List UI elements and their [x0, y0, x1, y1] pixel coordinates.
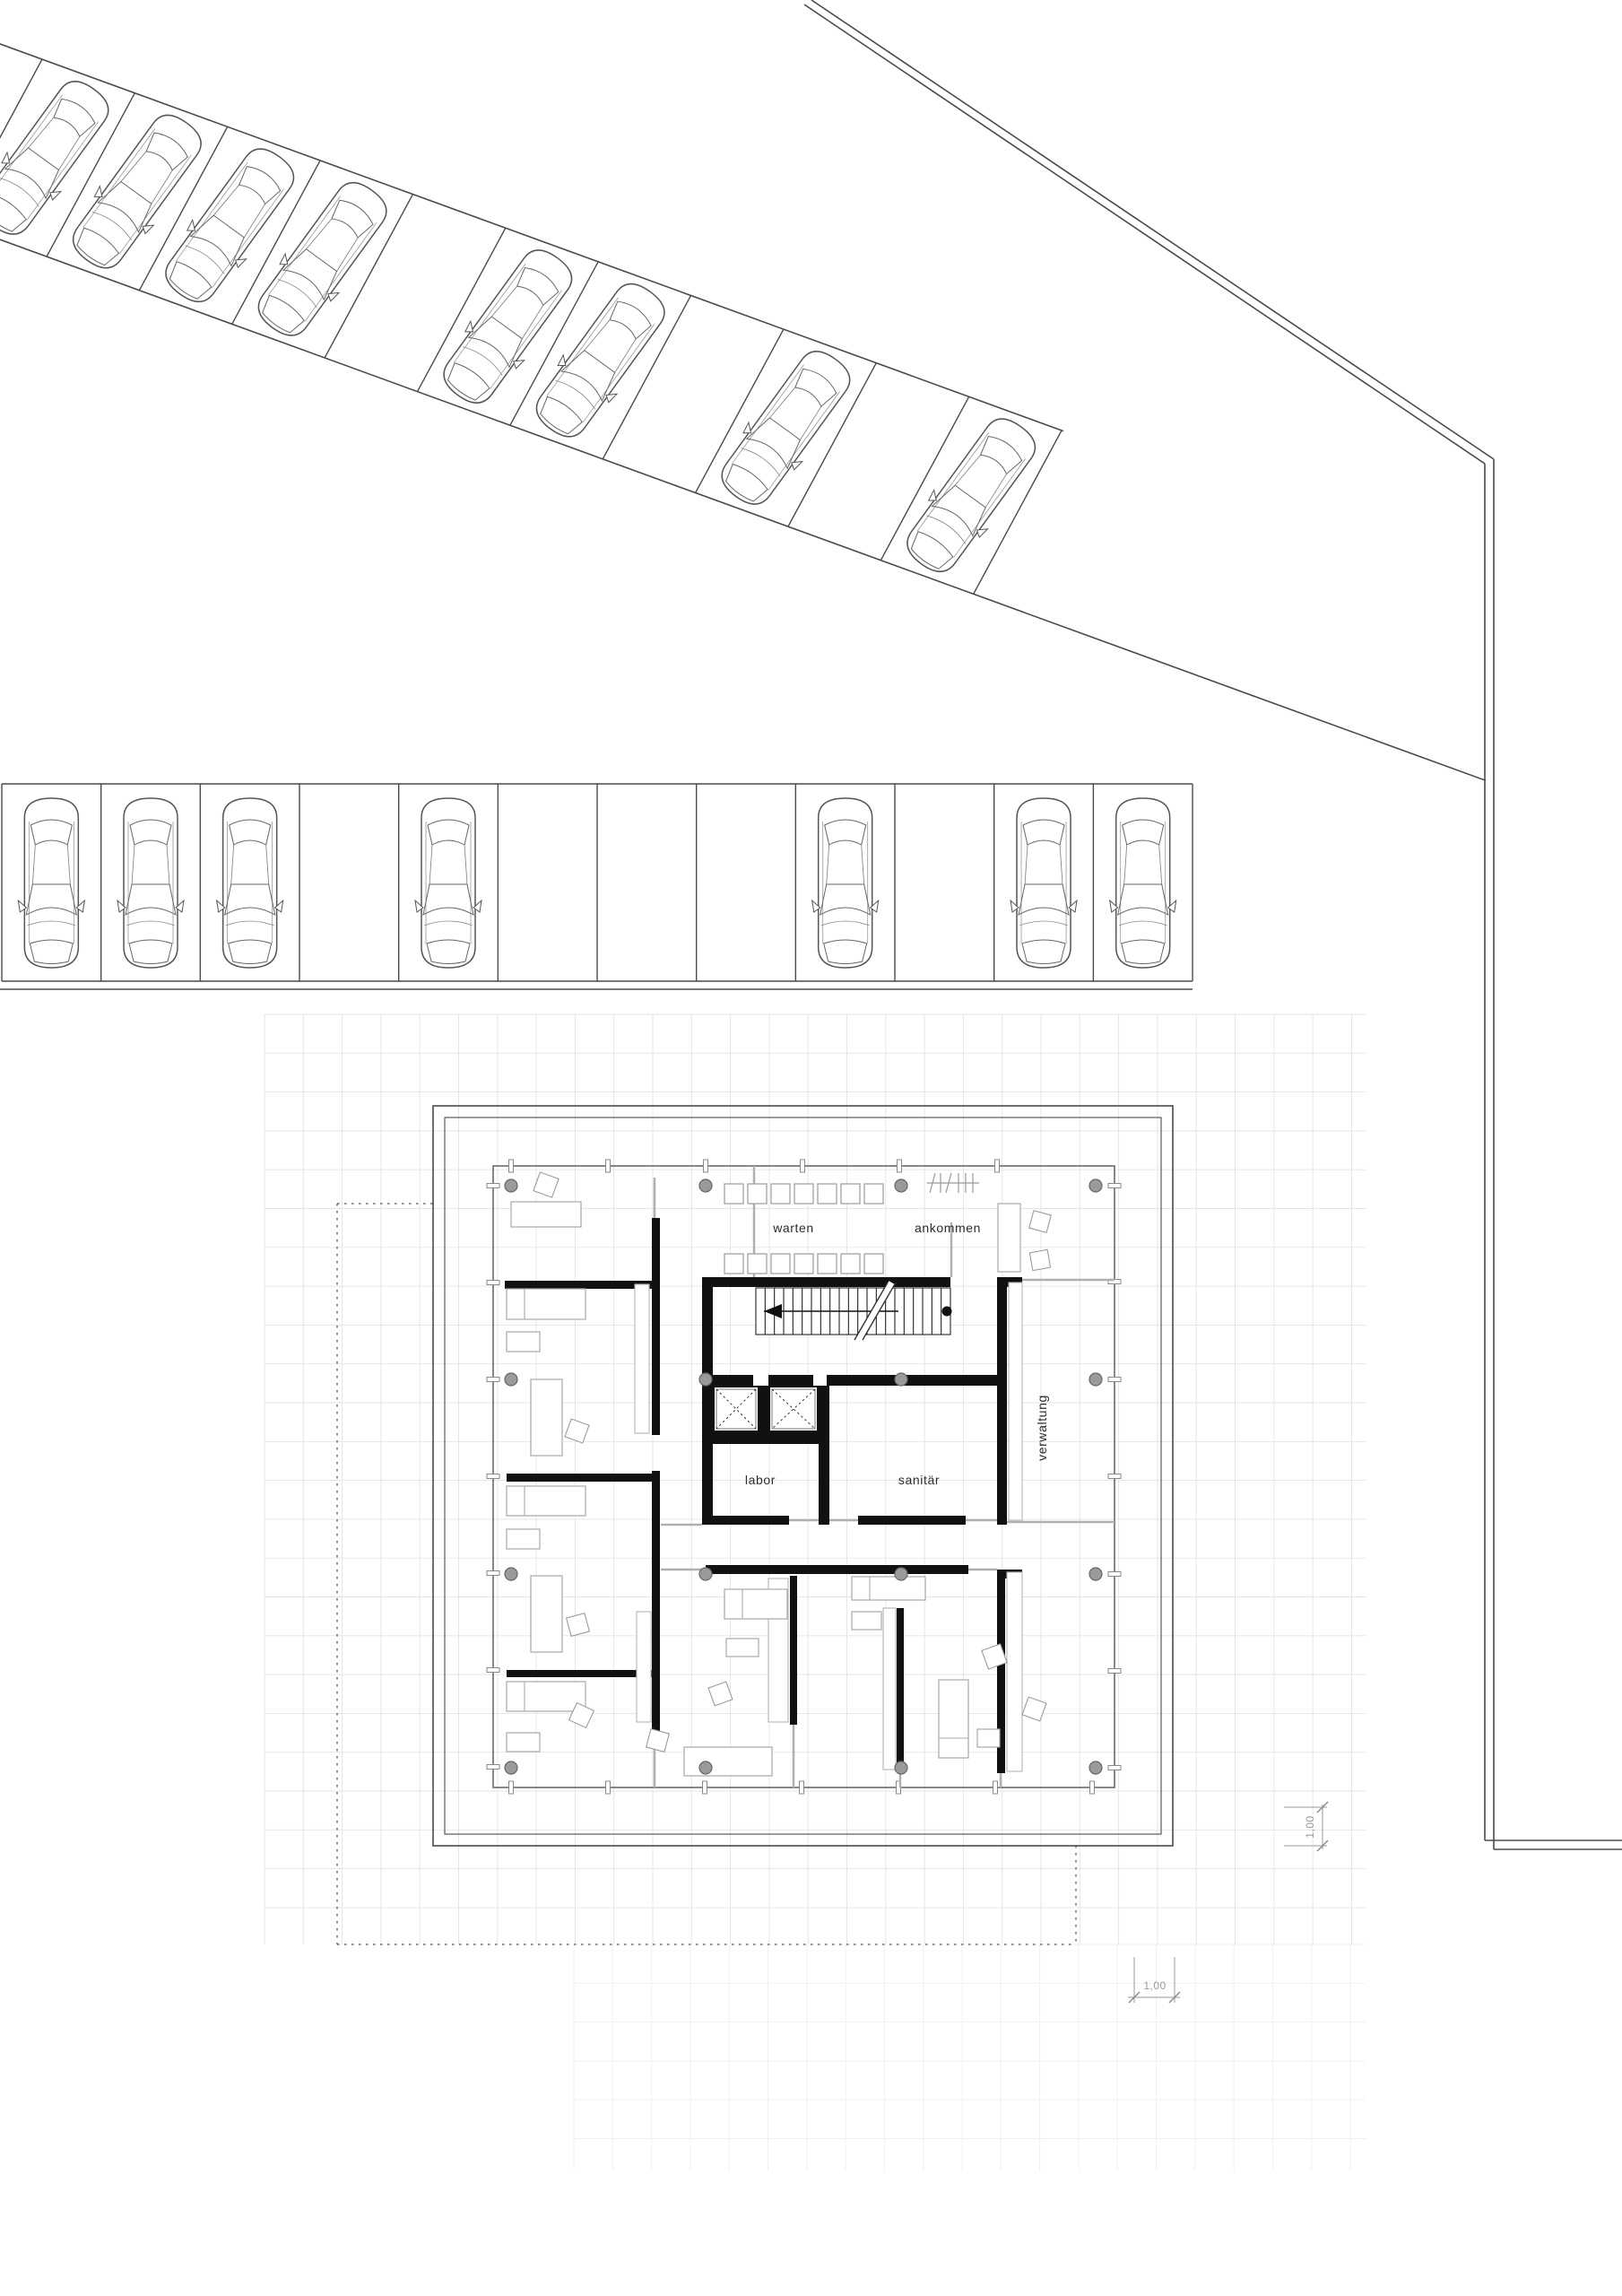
- waiting-chair: [794, 1184, 813, 1204]
- facade-tick: [800, 1781, 804, 1794]
- facade-tick: [487, 1378, 499, 1382]
- desk: [511, 1202, 581, 1227]
- column: [895, 1568, 907, 1580]
- waiting-chair: [771, 1254, 790, 1274]
- column: [1089, 1179, 1102, 1192]
- facade-tick: [487, 1668, 499, 1673]
- wall: [768, 1375, 813, 1386]
- column: [505, 1568, 517, 1580]
- wall: [702, 1432, 829, 1444]
- chair: [1022, 1697, 1046, 1721]
- facade-tick: [993, 1781, 998, 1794]
- chair: [533, 1172, 559, 1197]
- parked-car: [812, 798, 879, 968]
- waiting-chair: [748, 1254, 767, 1274]
- chair: [565, 1419, 589, 1443]
- facade-tick: [801, 1160, 805, 1172]
- parking-band-top-edge: [0, 21, 1063, 430]
- column: [1089, 1373, 1102, 1386]
- facade-tick: [1108, 1378, 1121, 1382]
- column: [699, 1761, 712, 1774]
- room-labels: warten ankommen labor sanitär verwaltung…: [745, 1221, 1316, 1992]
- dimension-annotations: [1128, 1802, 1328, 2003]
- wall: [505, 1281, 652, 1289]
- facade-tick: [995, 1160, 1000, 1172]
- bed: [507, 1682, 585, 1711]
- parked-car: [1010, 798, 1077, 968]
- facade-tick: [1108, 1474, 1121, 1479]
- waiting-chair: [724, 1184, 743, 1204]
- facade-tick: [606, 1160, 611, 1172]
- column: [699, 1568, 712, 1580]
- desk: [684, 1747, 772, 1776]
- diagonal-parking-row: [0, 21, 1548, 780]
- column: [895, 1373, 907, 1386]
- bed: [507, 1486, 585, 1516]
- wall: [507, 1474, 652, 1482]
- column: [699, 1373, 712, 1386]
- label-ankommen: ankommen: [915, 1221, 981, 1235]
- wall: [652, 1218, 660, 1435]
- wall: [997, 1277, 1007, 1525]
- facade-tick: [487, 1184, 499, 1188]
- wall: [858, 1516, 966, 1525]
- facade-tick: [606, 1781, 611, 1794]
- parked-car: [895, 407, 1048, 583]
- dimension-value-horizontal: 1,00: [1143, 1979, 1166, 1992]
- site-plan-page: warten ankommen labor sanitär verwaltung…: [0, 0, 1622, 2296]
- column: [699, 1179, 712, 1192]
- desk: [531, 1576, 562, 1652]
- facade-tick: [487, 1765, 499, 1770]
- waiting-chair: [748, 1184, 767, 1204]
- waiting-chair: [794, 1254, 813, 1274]
- desk: [852, 1612, 881, 1630]
- diagonal-parking-band: [0, 21, 1548, 780]
- cabinet: [1009, 1283, 1022, 1520]
- chair: [708, 1682, 733, 1706]
- label-sanitaer: sanitär: [898, 1473, 940, 1487]
- facade-tick: [509, 1160, 514, 1172]
- column: [505, 1179, 517, 1192]
- label-labor: labor: [745, 1473, 776, 1487]
- label-verwaltung: verwaltung: [1035, 1395, 1049, 1461]
- wall: [827, 1375, 997, 1386]
- facade-tick: [1108, 1669, 1121, 1674]
- bed: [507, 1289, 585, 1319]
- bed: [724, 1589, 787, 1619]
- facade-tick: [487, 1281, 499, 1285]
- facade-tick: [898, 1160, 902, 1172]
- road-edge-line: [804, 4, 1485, 464]
- waiting-chair: [841, 1184, 860, 1204]
- parked-car: [1110, 798, 1176, 968]
- cabinet: [637, 1612, 651, 1722]
- facade-tick: [1090, 1781, 1095, 1794]
- chair: [1029, 1211, 1051, 1232]
- desk: [507, 1529, 540, 1549]
- facade-tick: [509, 1781, 514, 1794]
- parked-car: [415, 798, 481, 968]
- cabinet: [1007, 1572, 1022, 1771]
- column: [895, 1179, 907, 1192]
- parked-car: [117, 798, 184, 968]
- facade-tick: [1108, 1184, 1121, 1188]
- wall: [507, 1670, 652, 1677]
- wall: [819, 1386, 829, 1525]
- column: [1089, 1761, 1102, 1774]
- horizontal-parking-row: [0, 784, 1193, 989]
- column: [895, 1761, 907, 1774]
- facade-tick: [1108, 1572, 1121, 1577]
- wall: [702, 1277, 713, 1525]
- wall: [897, 1608, 904, 1770]
- facade-tick: [487, 1474, 499, 1479]
- waiting-chair: [818, 1184, 837, 1204]
- waiting-chair: [771, 1184, 790, 1204]
- facade-tick: [703, 1781, 707, 1794]
- facade-tick: [1108, 1766, 1121, 1770]
- dimension-value-vertical: 1,00: [1304, 1815, 1316, 1838]
- modular-grid: [265, 1014, 1366, 2170]
- waiting-chair: [724, 1254, 743, 1274]
- road-edge-line: [811, 0, 1494, 459]
- waiting-chair: [864, 1184, 883, 1204]
- column: [505, 1373, 517, 1386]
- column: [505, 1761, 517, 1774]
- couch: [939, 1680, 968, 1758]
- desk: [977, 1729, 1000, 1747]
- waiting-chair: [864, 1254, 883, 1274]
- desk: [507, 1733, 540, 1752]
- desk: [726, 1639, 759, 1657]
- parked-car: [217, 798, 283, 968]
- wall: [702, 1277, 950, 1287]
- chair: [646, 1729, 670, 1752]
- stair-line-start-dot: [942, 1307, 952, 1317]
- waiting-chair: [841, 1254, 860, 1274]
- desk: [507, 1332, 540, 1352]
- desk: [998, 1204, 1020, 1272]
- wall: [702, 1516, 789, 1525]
- parked-car: [709, 340, 863, 516]
- chair: [1029, 1249, 1050, 1270]
- architectural-site-plan-drawing: warten ankommen labor sanitär verwaltung…: [0, 0, 1622, 2296]
- column: [1089, 1568, 1102, 1580]
- facade-tick: [487, 1571, 499, 1576]
- waiting-chair: [818, 1254, 837, 1274]
- bed: [852, 1577, 925, 1600]
- label-warten: warten: [772, 1221, 814, 1235]
- wall: [706, 1565, 968, 1574]
- cabinet: [883, 1608, 896, 1770]
- parked-car: [18, 798, 84, 968]
- facade-tick: [704, 1160, 708, 1172]
- wall: [652, 1471, 660, 1734]
- cabinet: [635, 1284, 649, 1433]
- desk: [531, 1379, 562, 1456]
- wall: [790, 1576, 797, 1725]
- chair: [567, 1613, 590, 1637]
